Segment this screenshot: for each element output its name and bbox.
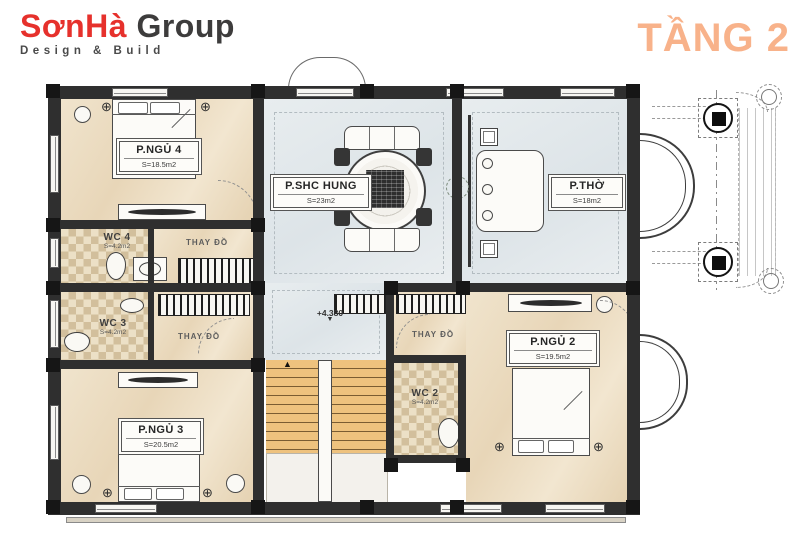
wall-bedroom2-top [386,283,640,292]
column [360,500,374,514]
column [46,281,60,295]
wall-stairs-right [386,283,394,463]
room-name: WC 3 [84,318,142,329]
room-name: P.NGỦ 4 [136,144,181,156]
wall-wc4-wc3 [48,283,264,292]
brand-name-red: SơnHà [20,8,127,44]
room-area: S=20.5m2 [126,438,196,449]
column-inner-circle [761,89,777,105]
room-label-worship: P.THỜ S=18m2 [548,174,626,211]
room-name: P.THỜ [569,180,604,192]
wardrobe-mid [158,294,250,316]
ceiling-fan-icon: ⊕ [200,100,211,113]
tv-screen [520,300,582,306]
wall-wc2-bottom [386,455,466,463]
column [360,84,374,98]
window-top-1 [112,88,168,97]
pillow [150,102,180,114]
wall-family-worship [452,86,462,292]
entrance-canopy-arc [288,57,366,89]
wall-closet-wc2 [386,355,466,363]
column [456,281,470,295]
wall-exterior-right [627,86,640,515]
column [251,218,265,232]
room-label-box: P.NGỦ 3 S=20.5m2 [121,421,201,452]
wall-bedroom4-wc4 [48,220,264,229]
room-label-box: P.NGỦ 4 S=18.5m2 [119,141,199,172]
room-label-box: P.THỜ S=18m2 [551,177,623,208]
ceiling-fan-icon: ⊕ [101,100,112,113]
room-label-bedroom3: P.NGỦ 3 S=20.5m2 [118,418,204,455]
brand-tagline: Design & Build [20,45,235,57]
room-name: P.NGỦ 2 [530,336,575,348]
column [46,84,60,98]
room-label-wc3: WC 3 S=4.2m2 [84,318,142,336]
column [251,358,265,372]
stair-direction-arrow: ▲ [283,360,292,369]
room-area: S=18.5m2 [124,158,194,169]
side-table-bedroom3 [226,474,245,493]
column [46,218,60,232]
ceiling-fan-icon: ⊕ [202,486,213,499]
room-area: S=23m2 [278,194,364,205]
room-label-wc4: WC 4 S=4.2m2 [88,232,146,250]
window-left-4 [50,405,59,460]
column [46,358,60,372]
column [46,500,60,514]
room-label-bedroom2: P.NGỦ 2 S=19.5m2 [506,330,600,367]
wardrobe-top [178,258,254,284]
company-logo: SơnHà Group Design & Build [20,10,235,57]
tv-screen [128,209,196,215]
room-name: WC 4 [88,232,146,243]
door-swing-bedroom4 [218,180,258,220]
column [450,84,464,98]
window-top-4 [560,88,615,97]
pillow [156,488,184,500]
ceiling-fan-icon: ⊕ [494,440,505,453]
closet-label-mid: THAY ĐỒ [178,332,220,341]
wardrobe-right [396,294,466,314]
room-label-box: P.NGỦ 2 S=19.5m2 [509,333,597,364]
room-label-box: P.SHC HUNG S=23m2 [273,177,369,208]
ceiling-fan-icon: ⊕ [102,486,113,499]
room-name: WC 2 [396,388,454,399]
brand-name-dark: Group [136,8,234,44]
altar-item [482,210,493,221]
bed-headboard-line [512,438,590,439]
balcony-column-bottom [698,242,738,282]
page-title: TẦNG 2 [600,16,790,61]
column [251,84,265,98]
window-left-3 [50,300,59,348]
pillow [124,488,152,500]
window-top-2 [296,88,354,97]
column [251,281,265,295]
level-marker: +4.380 ▼ [303,308,357,322]
room-label-wc2: WC 2 S=4.2m2 [396,388,454,406]
column [456,458,470,472]
column [251,500,265,514]
balcony-column-top [698,98,738,138]
stair-flight-right [332,360,386,453]
room-label-bedroom4: P.NGỦ 4 S=18.5m2 [116,138,202,175]
wall-wc4-closet [148,220,154,292]
wall-interior-vertical-left [253,86,264,515]
altar-item [482,158,493,169]
stool [480,128,498,146]
altar-item [482,184,493,195]
pillow [518,440,544,453]
room-label-family: P.SHC HUNG S=23m2 [270,174,372,211]
floor-plan-page: SơnHà Group Design & Build TẦNG 2 ▲ [0,0,800,547]
wall-wc2-bedroom2 [458,355,466,463]
room-name: P.NGỦ 3 [138,424,183,436]
room-area: S=19.5m2 [514,350,592,361]
room-area: S=18m2 [556,194,618,205]
column [384,458,398,472]
stair-stringer [318,360,332,502]
room-area: S=4.2m2 [88,243,146,250]
column-inner-circle [763,273,779,289]
pillow [118,102,148,114]
window-left-2 [50,238,59,268]
column [450,500,464,514]
closet-label-top: THAY ĐỒ [186,238,228,247]
ceiling-fan-icon: ⊕ [593,440,604,453]
sofa-top [344,126,420,150]
brand-name: SơnHà Group [20,10,235,44]
window-left-1 [50,135,59,193]
room-name: P.SHC HUNG [285,180,357,192]
side-table-bedroom4 [74,106,91,123]
tv-screen [128,377,188,383]
sink-wc3 [120,298,144,313]
window-bottom-3 [545,504,605,513]
armchair [416,208,432,226]
column [626,84,640,98]
column-core [712,256,726,270]
wall-wc3-bedroom3 [48,360,264,369]
room-area: S=4.2m2 [84,329,142,336]
wall-wc3-closet [148,283,154,369]
column [626,500,640,514]
column [626,281,640,295]
sofa-bottom [344,228,420,252]
window-bottom-1 [95,504,157,513]
armchair [334,148,350,166]
level-triangle-icon: ▼ [303,318,357,322]
room-area: S=4.2m2 [396,399,454,406]
column [384,281,398,295]
stair-flight-left [266,360,318,453]
balcony-hatch [738,108,776,276]
balcony-end-column-top [756,84,782,110]
balcony-end-column-bottom [758,268,784,294]
bed-headboard-line [118,486,200,487]
closet-label-right: THAY ĐỒ [412,330,454,339]
stool [480,240,498,258]
porch-edge [66,517,626,523]
armchair [416,148,432,166]
pillow [548,440,574,453]
side-table-bedroom3 [72,475,91,494]
column-core [712,112,726,126]
